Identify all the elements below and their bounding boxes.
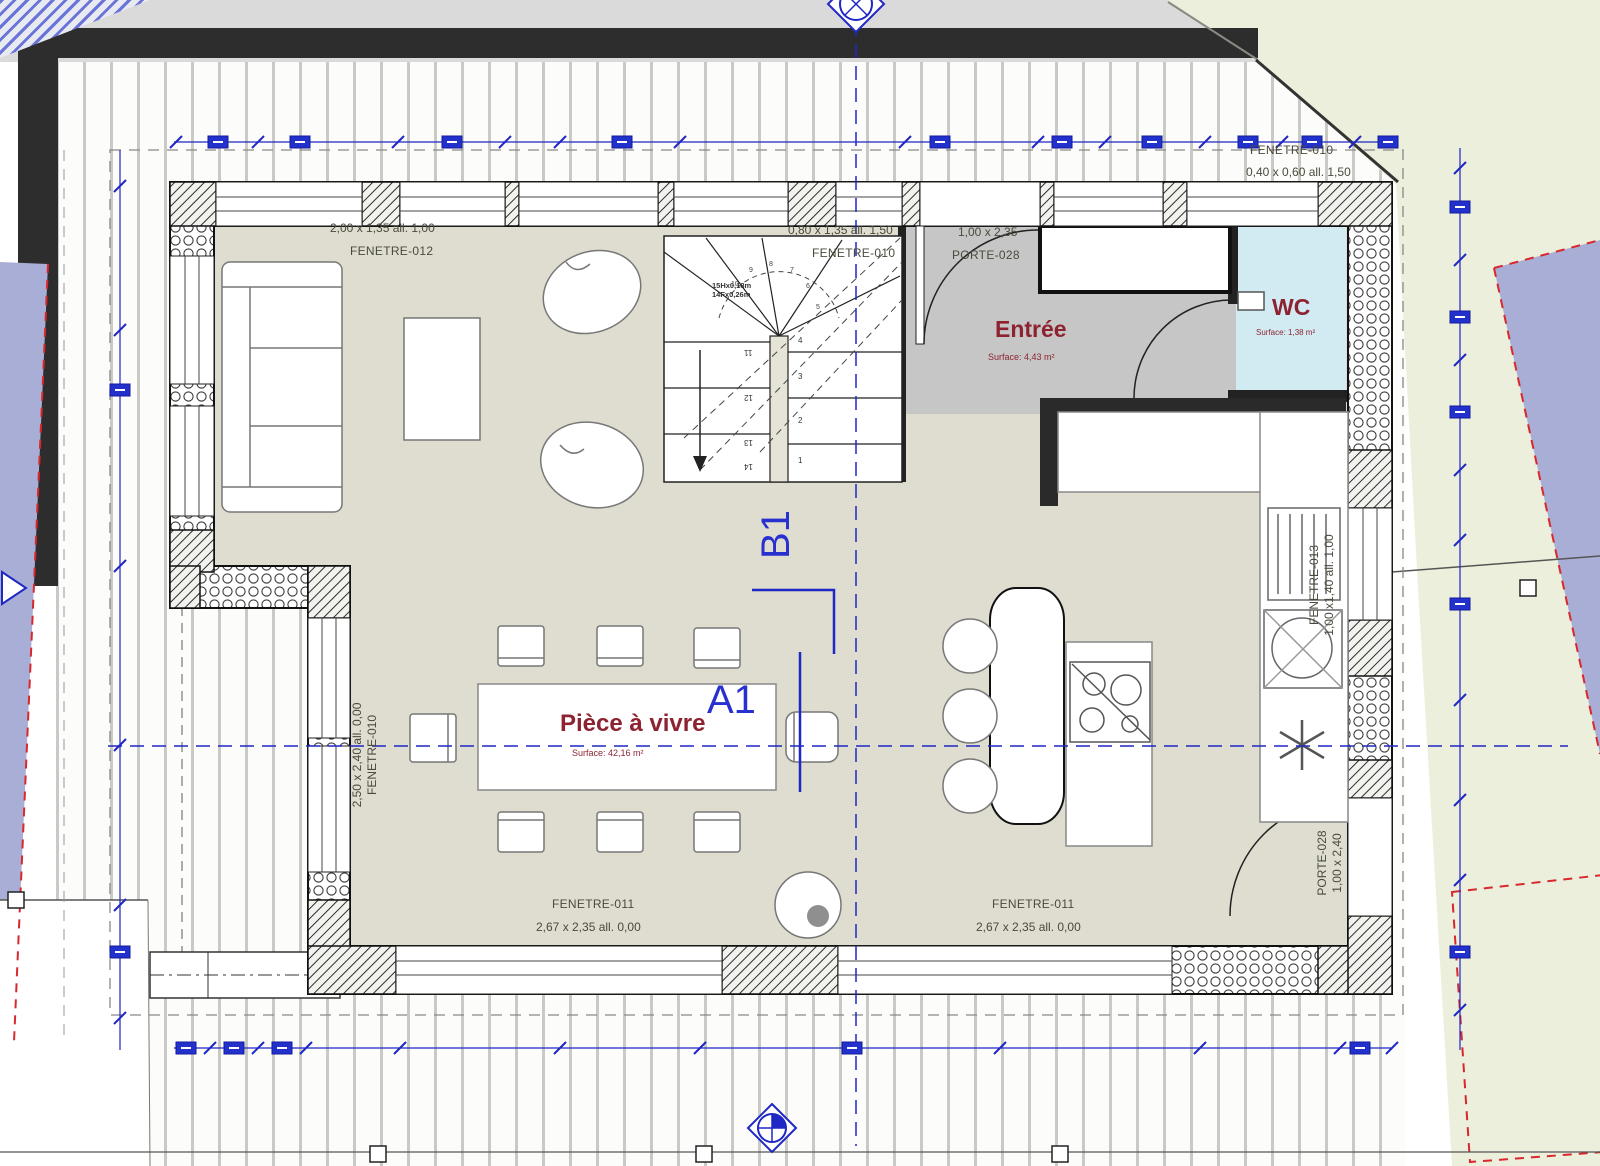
room-surface-living: Surface: 42,16 m² [572,748,644,758]
stair-step: 13 [744,438,753,447]
label-fenetre-013-right: FENETRE-013 1,00 x1,40 all. 1,00 [1307,495,1337,675]
stair-step: 6 [806,283,810,290]
section-label-b1: B1 [754,510,799,559]
label-porte-028-right: PORTE-028 1,00 x 2,40 [1315,788,1345,938]
stair-step: 3 [798,372,802,381]
room-label-living: Pièce à vivre [560,710,705,738]
floor-plan-canvas: 2,00 x 1,35 all. 1,00 FENETRE-012 0,80 x… [0,0,1600,1166]
room-surface-wc: Surface: 1,38 m² [1256,328,1315,337]
label-fenetre-011-right-name: FENETRE-011 [992,898,1074,911]
label-fenetre-010-top-name: FENETRE-010 [812,247,895,260]
stair-step: 1 [798,456,802,465]
room-surface-entry: Surface: 4,43 m² [988,352,1055,362]
label-fenetre-011-right-dims: 2,67 x 2,35 all. 0,00 [976,921,1081,934]
stair-step: 4 [798,336,802,345]
section-label-a1: A1 [707,678,756,723]
room-label-entry: Entrée [995,316,1067,343]
room-label-wc: WC [1272,294,1310,321]
stair-step: 11 [744,348,752,357]
stair-step: 7 [790,267,794,274]
stair-step: 10 [731,281,739,288]
label-fenetre-010-ne-name: FENETRE-010 [1250,144,1333,157]
label-fenetre-012-dims: 2,00 x 1,35 all. 1,00 [330,222,435,235]
label-fenetre-011-left-dims: 2,67 x 2,35 all. 0,00 [536,921,641,934]
label-fenetre-012-name: FENETRE-012 [350,245,433,258]
label-fenetre-010-top-dims: 0,80 x 1,35 all. 1,50 [788,224,893,237]
label-fenetre-011-left-name: FENETRE-011 [552,898,634,911]
stair-step: 8 [769,261,773,268]
label-fenetre-010-left: 2,50 x 2,40 all. 0,00 FENETRE-010 [350,640,380,870]
stair-note-2: 14Fx0,26m [712,290,750,299]
stair-step: 2 [798,416,802,425]
label-fenetre-010-ne-dims: 0,40 x 0,60 all. 1,50 [1246,166,1351,179]
stair-step: 12 [744,393,753,402]
label-porte-028-top-name: PORTE-028 [952,249,1020,262]
stair-step: 5 [816,304,820,311]
stair-step: 9 [749,267,753,274]
labels-layer: 2,00 x 1,35 all. 1,00 FENETRE-012 0,80 x… [0,0,1600,1166]
stair-step: 14 [744,462,753,471]
label-porte-028-top-dims: 1,00 x 2,35 [958,226,1017,239]
